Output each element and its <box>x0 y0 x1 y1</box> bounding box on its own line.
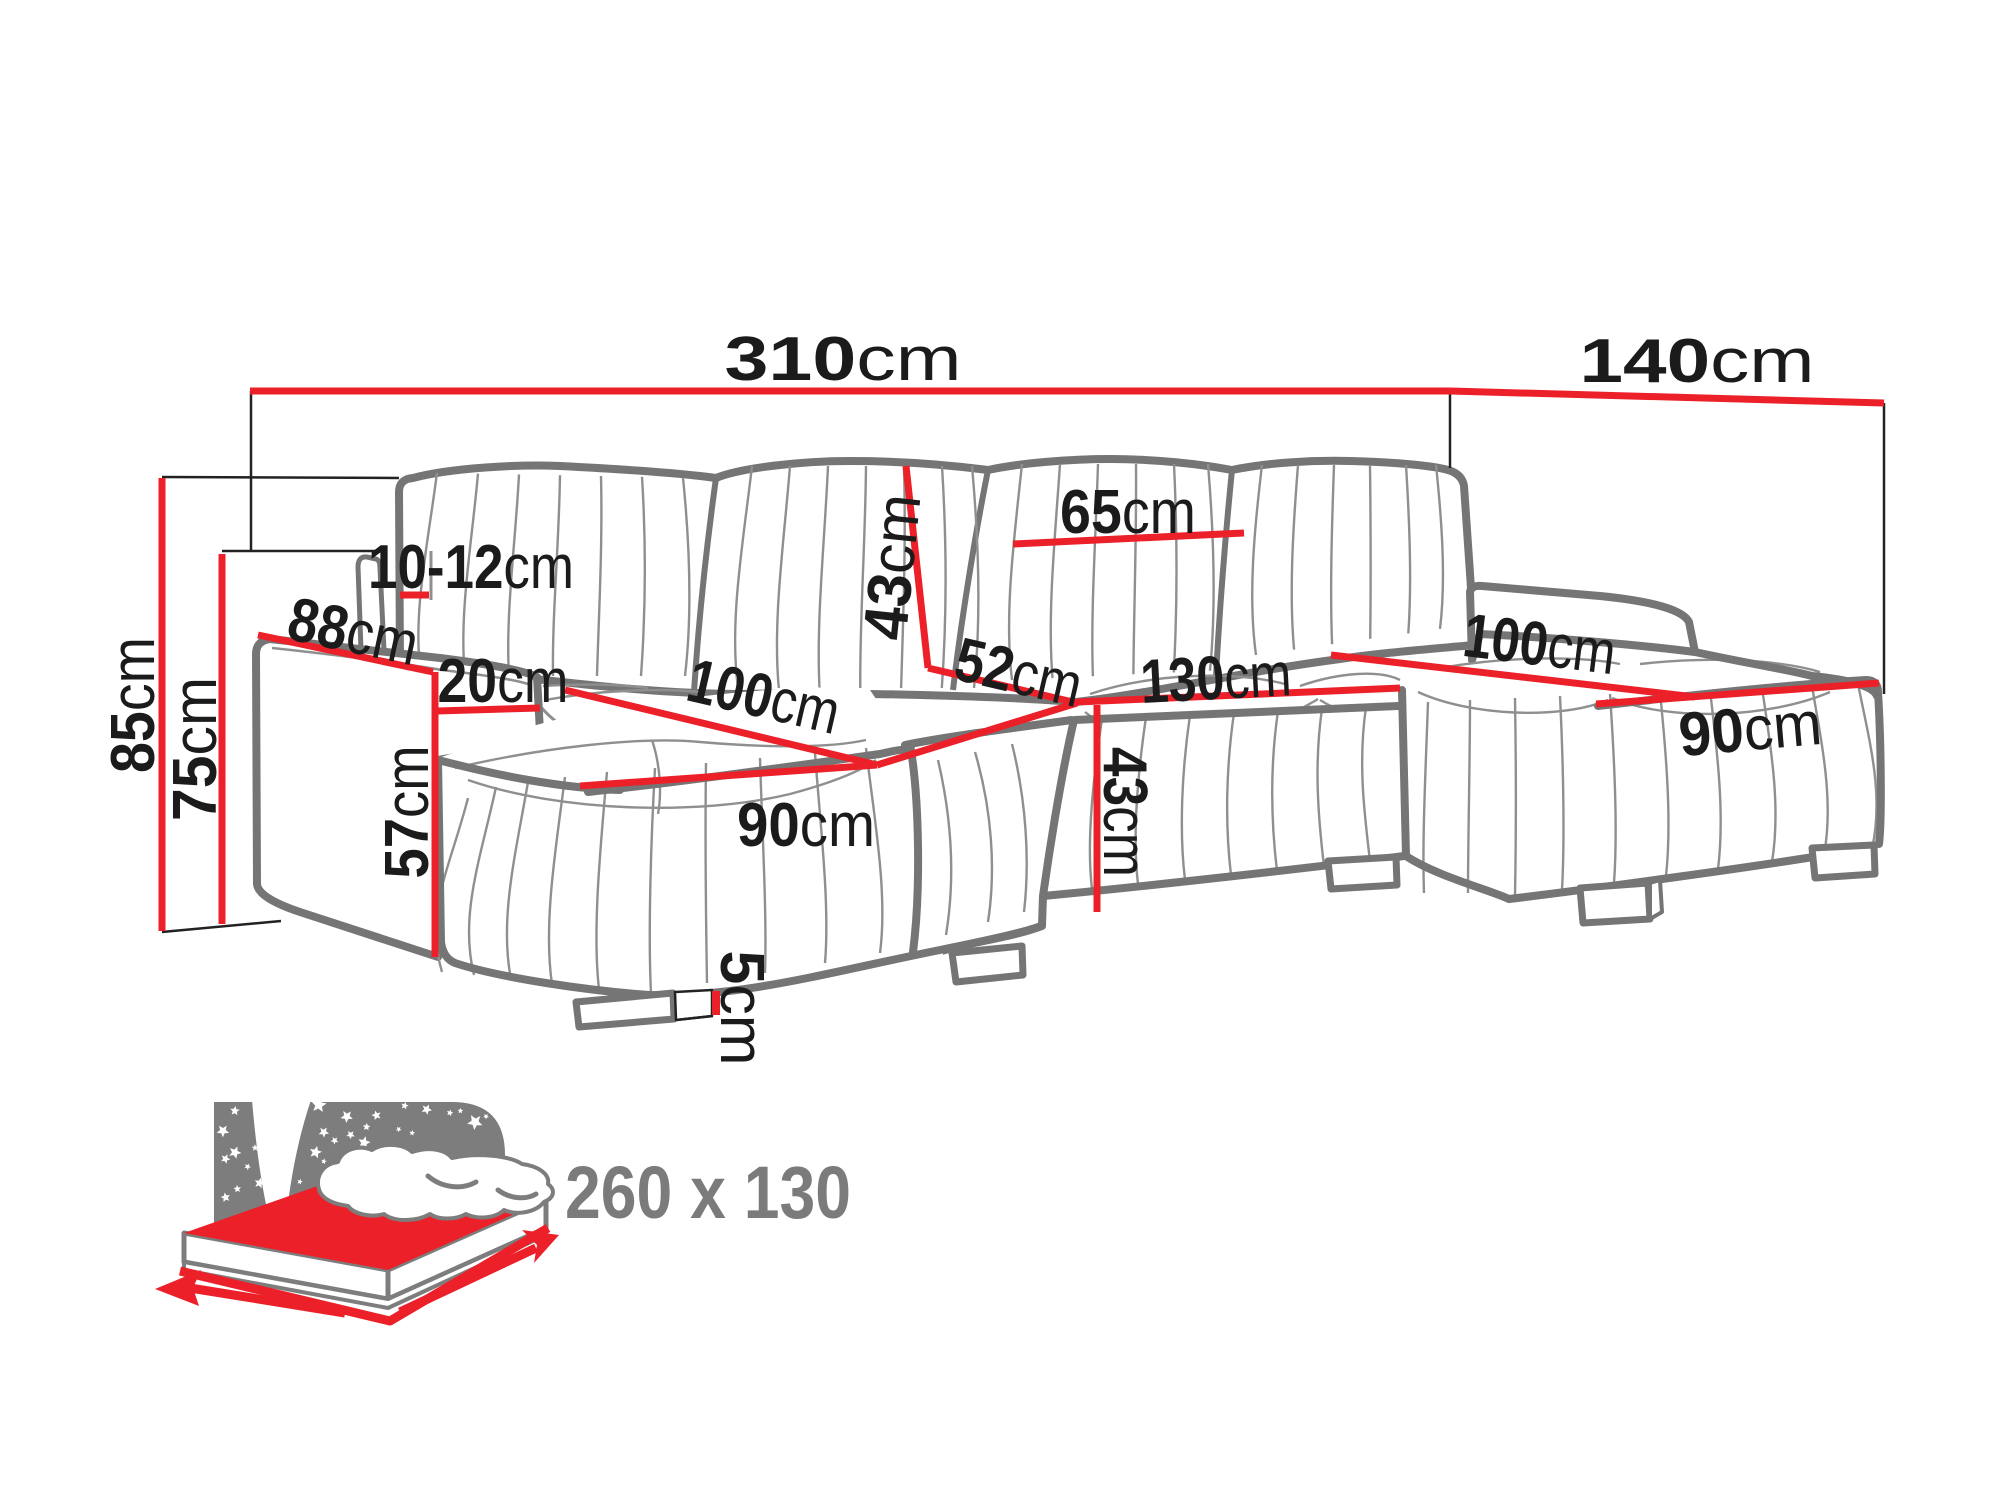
svg-text:90cm: 90cm <box>1676 689 1824 770</box>
svg-text:75cm: 75cm <box>161 677 230 821</box>
svg-text:20cm: 20cm <box>438 647 569 716</box>
svg-text:140cm: 140cm <box>1580 327 1815 396</box>
svg-text:65cm: 65cm <box>1060 478 1196 547</box>
svg-text:260 x 130: 260 x 130 <box>565 1151 851 1234</box>
svg-text:130cm: 130cm <box>1139 640 1293 717</box>
svg-text:10-12cm: 10-12cm <box>368 533 574 602</box>
svg-text:90cm: 90cm <box>737 791 875 860</box>
svg-text:5cm: 5cm <box>707 951 776 1066</box>
svg-text:43cm: 43cm <box>1090 747 1159 877</box>
svg-text:57cm: 57cm <box>373 746 442 879</box>
svg-text:310cm: 310cm <box>725 325 962 394</box>
svg-text:85cm: 85cm <box>99 637 168 773</box>
